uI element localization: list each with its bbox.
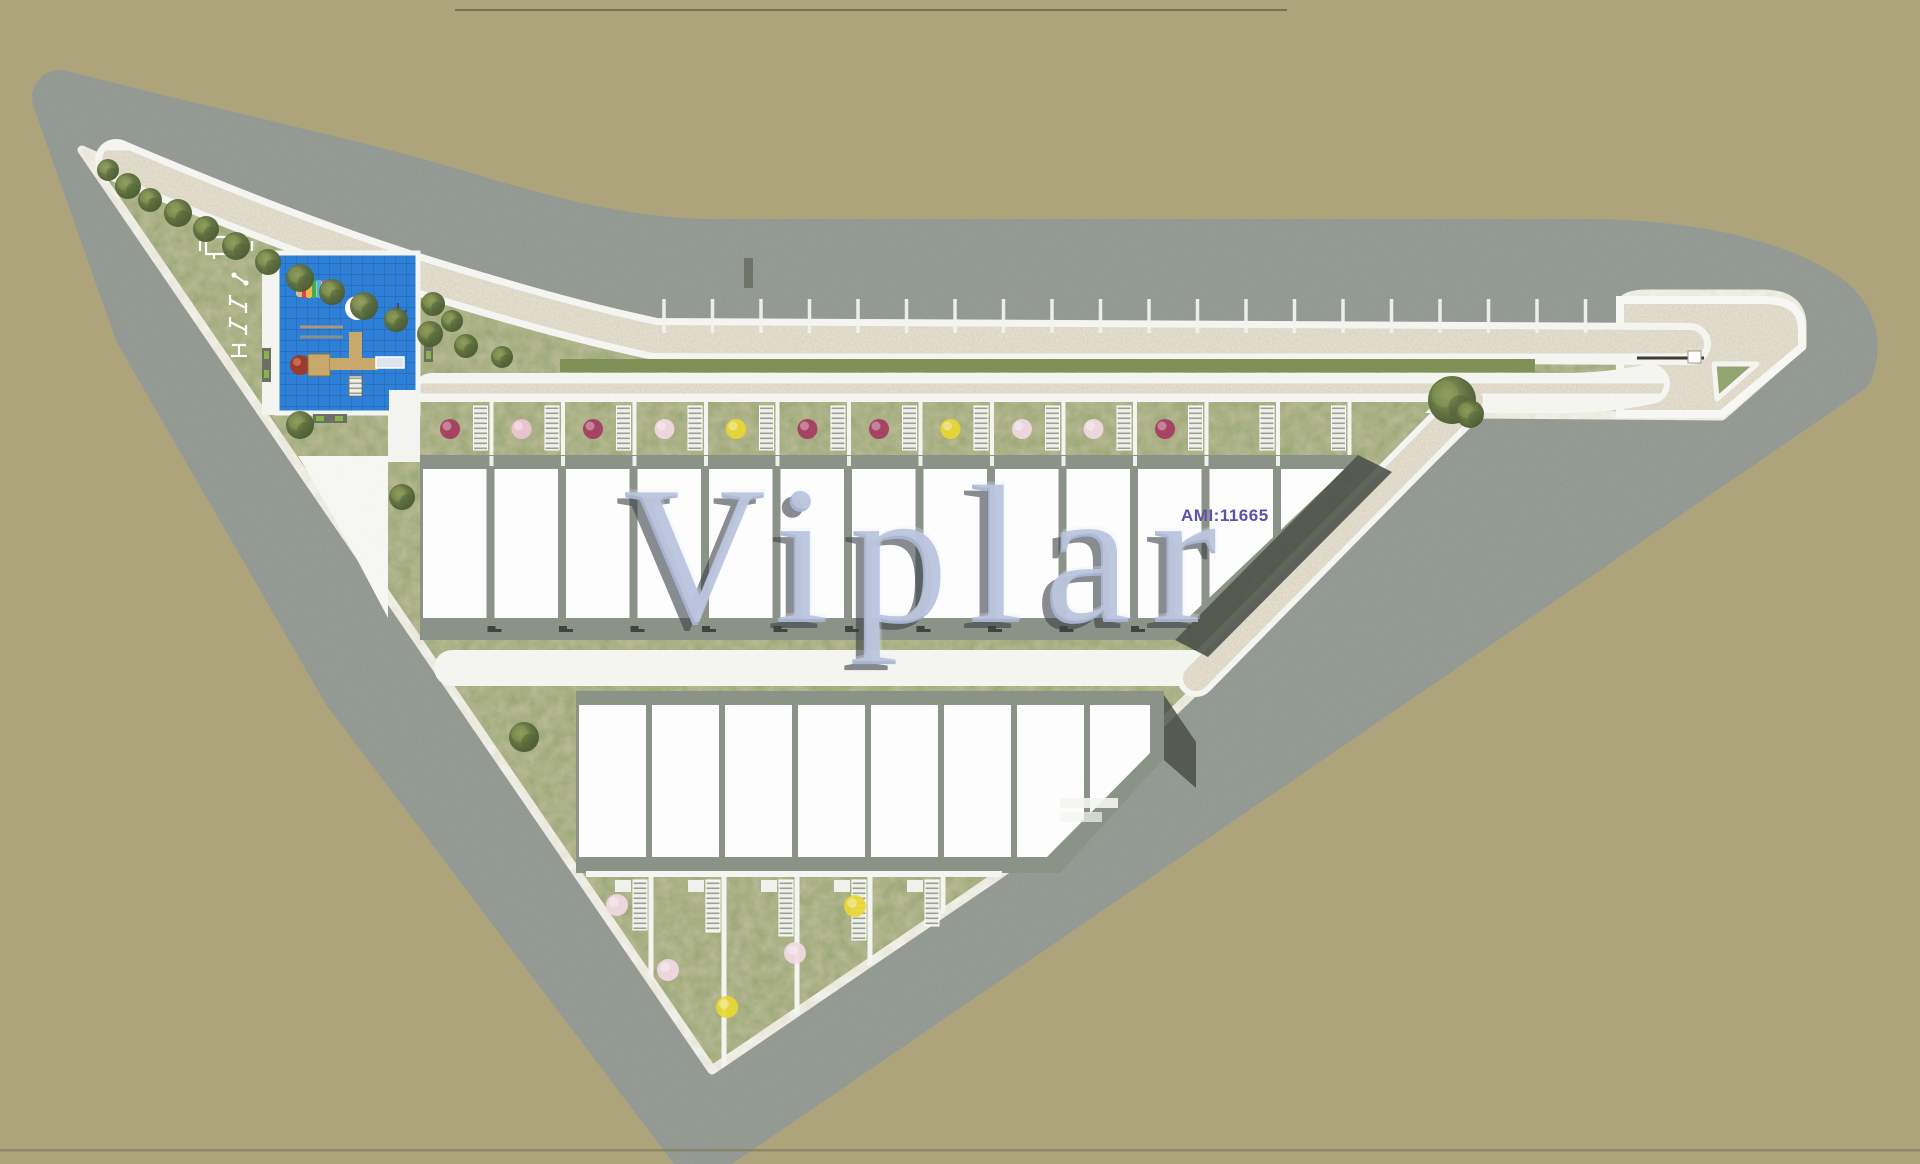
circle: [176, 210, 190, 224]
circle: [1468, 411, 1482, 425]
stairs-icon: [474, 406, 488, 450]
flower-icon: [719, 999, 729, 1009]
building-unit: [871, 705, 938, 857]
flower-icon: [729, 422, 738, 431]
tree-icon: [97, 159, 119, 181]
tree-icon: [286, 411, 314, 439]
building-unit: [652, 705, 719, 857]
building-unit: [798, 705, 865, 857]
watermark-text: Viplar Viplar Viplar: [615, 443, 1239, 671]
building-unit: [579, 705, 646, 857]
tree-icon: [417, 321, 443, 347]
slide-dome: [290, 355, 310, 375]
flower-icon: [787, 945, 797, 955]
tree-icon: [138, 188, 162, 212]
tree-icon: [222, 232, 250, 260]
stairs-landing: [907, 880, 923, 892]
gate-barrier-icon: [1688, 351, 1701, 363]
stairs-icon: [545, 406, 559, 450]
tree-icon: [286, 264, 314, 292]
building-unit: [725, 705, 792, 857]
building-unit: [944, 705, 1011, 857]
building-unit: [423, 469, 487, 618]
circle: [464, 344, 476, 356]
slide-icon: [376, 357, 404, 368]
svg-text:Viplar: Viplar: [625, 443, 1239, 662]
flower-icon: [609, 897, 619, 907]
stairs-landing: [761, 880, 777, 892]
hedge-strip: [560, 359, 1535, 372]
flower-icon: [800, 422, 809, 431]
circle: [431, 302, 443, 314]
circle: [298, 275, 312, 289]
bench-icon: [744, 258, 753, 288]
circle: [148, 198, 160, 210]
site-plan: Viplar Viplar Viplar AMI:11665: [0, 0, 1920, 1164]
stairs-icon: [1332, 406, 1346, 450]
flower-icon: [872, 422, 881, 431]
flower-icon: [657, 422, 666, 431]
tree-icon: [441, 310, 463, 332]
tree-icon: [384, 308, 408, 332]
bench-icon: [313, 414, 347, 423]
tree-icon: [319, 279, 345, 305]
circle: [362, 303, 376, 317]
unit-divider-mark: [561, 456, 565, 466]
unit-divider-mark: [1276, 456, 1280, 466]
flower-icon: [1158, 422, 1167, 431]
circle: [204, 226, 217, 239]
tree-icon: [389, 484, 415, 510]
flower-icon: [1015, 422, 1024, 431]
bench-icon: [262, 348, 271, 382]
building-unit: [495, 469, 559, 618]
tree-icon: [255, 249, 281, 275]
circle: [330, 289, 343, 302]
flower-icon: [514, 422, 523, 431]
stairs-icon: [779, 880, 793, 936]
tree-icon: [193, 216, 219, 242]
unit-entry-mark: [559, 629, 573, 632]
tree-icon: [421, 292, 445, 316]
circle: [500, 355, 511, 366]
stairs-landing: [615, 880, 631, 892]
circle: [298, 422, 312, 436]
tree-icon: [1456, 400, 1484, 428]
circle: [234, 243, 248, 257]
flower-icon: [943, 422, 952, 431]
stairs-landing: [834, 880, 850, 892]
circle: [106, 168, 117, 179]
tree-icon: [491, 346, 513, 368]
flower-icon: [443, 422, 452, 431]
tree-icon: [509, 722, 539, 752]
ami-label: AMI:11665: [1181, 506, 1269, 525]
tree-icon: [454, 334, 478, 358]
circle: [394, 318, 406, 330]
circle: [428, 331, 441, 344]
stairs-icon: [706, 880, 720, 932]
flower-icon: [1086, 422, 1095, 431]
circle: [126, 183, 139, 196]
tree-icon: [164, 199, 192, 227]
tree-icon: [350, 292, 378, 320]
boundary-line-top: [455, 9, 1287, 11]
tree-icon: [115, 173, 141, 199]
unit-divider-mark: [490, 456, 494, 466]
flower-icon: [660, 962, 670, 972]
unit-entry-mark: [488, 629, 502, 632]
circle: [450, 319, 461, 330]
circle: [400, 494, 413, 507]
flower-icon: [847, 898, 857, 908]
stairs-landing: [688, 880, 704, 892]
stairs-icon: [633, 880, 647, 930]
boundary-line-bottom: [0, 1149, 1920, 1152]
circle: [266, 259, 279, 272]
stairs-icon: [925, 880, 939, 926]
stairs-icon: [1260, 406, 1274, 450]
flower-icon: [586, 422, 595, 431]
circle: [522, 734, 537, 749]
